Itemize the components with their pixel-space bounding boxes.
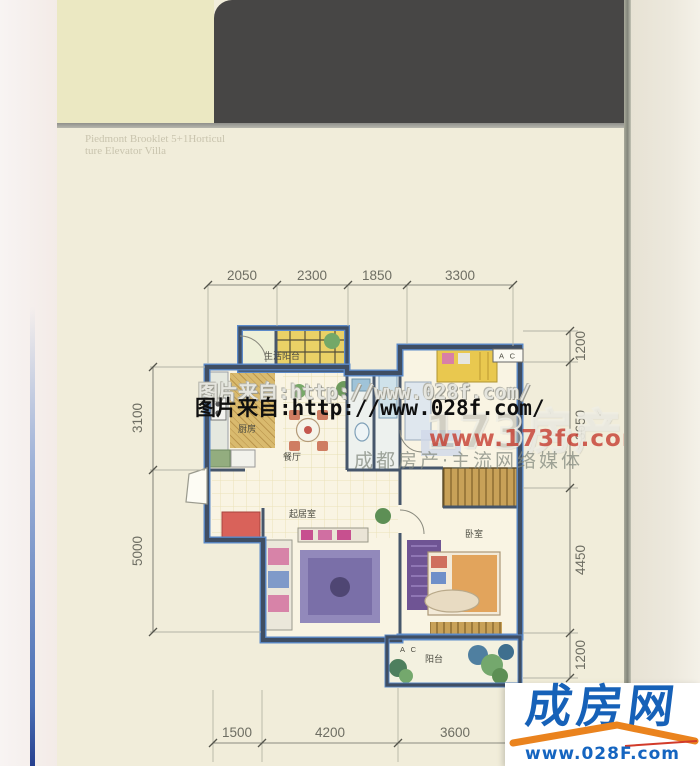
room-label-kitchen: 厨房 bbox=[238, 423, 256, 435]
dim-bottom-2: 4200 bbox=[315, 725, 345, 740]
dim-top-4: 3300 bbox=[445, 268, 475, 283]
room-label-living: 起居室 bbox=[289, 508, 316, 520]
ac-label-top: A C bbox=[499, 352, 517, 361]
room-label-living-balcony: 生活阳台 bbox=[264, 350, 300, 362]
room-label-bedroom: 卧室 bbox=[465, 528, 483, 540]
page-edge-shadow bbox=[624, 0, 631, 766]
unit-info-panel bbox=[57, 0, 214, 123]
dim-top-3: 1850 bbox=[362, 268, 392, 283]
dim-top-1: 2050 bbox=[227, 268, 257, 283]
english-subtitle: Piedmont Brooklet 5+1Horticul ture Eleva… bbox=[85, 133, 225, 157]
dim-right-3: 4450 bbox=[573, 545, 588, 575]
dim-left-2: 5000 bbox=[130, 536, 145, 566]
kitchen-sink bbox=[209, 450, 230, 467]
watermark-site-tagline: 成都房产·主流网络媒体 bbox=[354, 446, 583, 473]
scan-right-margin bbox=[631, 0, 700, 766]
wardrobe bbox=[443, 468, 517, 507]
ac-label-balcony: A C bbox=[400, 645, 418, 654]
bed-bench bbox=[430, 622, 502, 634]
dim-bottom-3: 3600 bbox=[440, 725, 470, 740]
dim-right-4: 1200 bbox=[573, 640, 588, 670]
english-line2: ture Elevator Villa bbox=[85, 145, 225, 157]
entry-door bbox=[186, 468, 207, 504]
scanned-floorplan-page: C4 2房2厅 建筑面积: 84.90~85.81m2 晋层 間水山 【山麓·清… bbox=[0, 0, 700, 766]
scan-left-blue-edge bbox=[30, 0, 35, 766]
niche-desk bbox=[222, 512, 260, 537]
toilet-icon bbox=[355, 423, 369, 441]
site-logo: 成房网 www.028F.com bbox=[505, 683, 700, 766]
room-label-balcony: 阳台 bbox=[425, 653, 443, 665]
brochure-page: C4 2房2厅 建筑面积: 84.90~85.81m2 晋层 間水山 【山麓·清… bbox=[57, 0, 624, 766]
english-line1: Piedmont Brooklet 5+1Horticul bbox=[85, 133, 225, 145]
plant-icon bbox=[375, 508, 391, 524]
chaise bbox=[425, 590, 479, 612]
dim-right-1: 1200 bbox=[573, 331, 588, 361]
room-label-dining: 餐厅 bbox=[283, 451, 301, 463]
dim-left-1: 3100 bbox=[130, 403, 145, 433]
watermark-photo-source: 图片来自:http://www.028f.com/ bbox=[195, 392, 545, 422]
scan-left-margin bbox=[0, 0, 57, 766]
dim-top-2: 2300 bbox=[297, 268, 327, 283]
header-divider bbox=[57, 123, 624, 128]
header-dark-band bbox=[214, 0, 624, 123]
site-logo-url: www.028F.com bbox=[505, 744, 700, 764]
dim-bottom-1: 1500 bbox=[222, 725, 252, 740]
